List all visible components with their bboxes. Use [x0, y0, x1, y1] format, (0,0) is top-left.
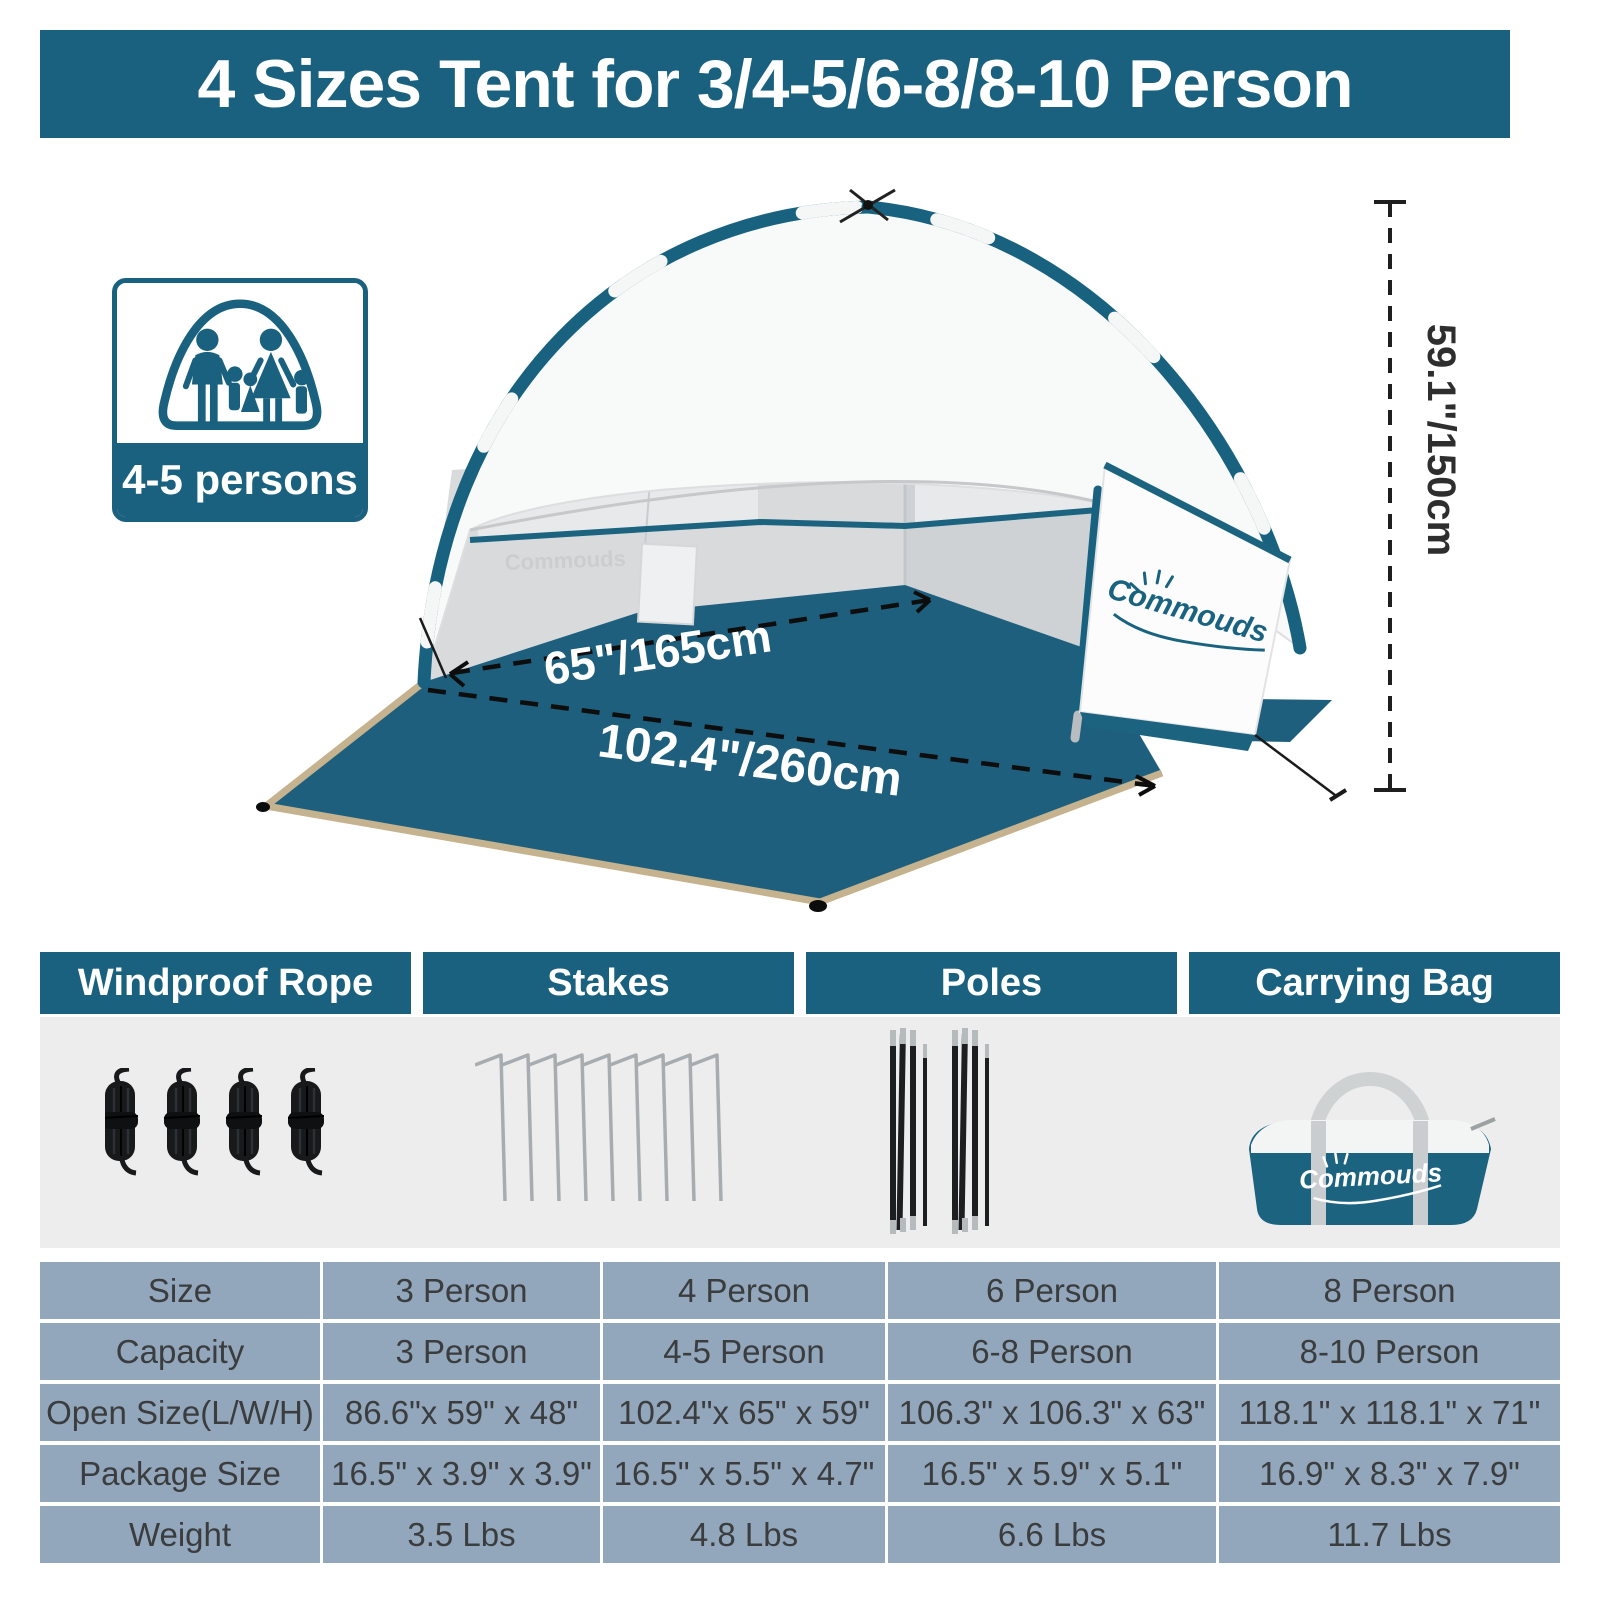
- spec-cell: 106.3" x 106.3" x 63": [888, 1384, 1216, 1441]
- spec-cell: 16.9" x 8.3" x 7.9": [1219, 1445, 1560, 1502]
- spec-cell: 11.7 Lbs: [1219, 1506, 1560, 1563]
- product-infographic: 4 Sizes Tent for 3/4-5/6-8/8-10 Person C…: [0, 0, 1600, 1600]
- header-windproof-rope: Windproof Rope: [40, 952, 411, 1014]
- spec-row-header: Weight: [40, 1506, 320, 1563]
- spec-cell: 6 Person: [888, 1262, 1216, 1319]
- spec-cell: 8 Person: [1219, 1262, 1560, 1319]
- spec-table: Size3 Person4 Person6 Person8 PersonCapa…: [40, 1262, 1560, 1563]
- spec-cell: 102.4"x 65" x 59": [603, 1384, 885, 1441]
- spec-cell: 3 Person: [323, 1262, 600, 1319]
- header-stakes: Stakes: [423, 952, 794, 1014]
- wall-watermark: Commouds: [504, 546, 626, 575]
- capacity-badge: 4-5 persons: [112, 278, 368, 522]
- spec-cell: 86.6"x 59" x 48": [323, 1384, 600, 1441]
- stakes-icon: [420, 1017, 800, 1248]
- rope-coils-icon: [40, 1017, 420, 1248]
- poles-icon: [800, 1017, 1180, 1248]
- capacity-badge-label: 4-5 persons: [117, 443, 363, 517]
- spec-cell: 16.5" x 5.5" x 4.7": [603, 1445, 885, 1502]
- tent-diagram: Commouds: [0, 150, 1600, 940]
- height-dimension: [1374, 202, 1406, 790]
- banner-title: 4 Sizes Tent for 3/4-5/6-8/8-10 Person: [198, 45, 1353, 123]
- spec-cell: 118.1" x 118.1" x 71": [1219, 1384, 1560, 1441]
- dim-height-label: 59.1"/150cm: [1419, 324, 1463, 556]
- spec-row-header: Package Size: [40, 1445, 320, 1502]
- spec-cell: 6.6 Lbs: [888, 1506, 1216, 1563]
- family-in-tent-icon: [117, 283, 363, 443]
- spec-cell: 3 Person: [323, 1323, 600, 1380]
- carrying-bag-icon: Commouds: [1180, 1017, 1560, 1248]
- spec-cell: 16.5" x 3.9" x 3.9": [323, 1445, 600, 1502]
- spec-cell: 4-5 Person: [603, 1323, 885, 1380]
- spec-cell: 4 Person: [603, 1262, 885, 1319]
- spec-row-header: Open Size(L/W/H): [40, 1384, 320, 1441]
- spec-cell: 16.5" x 5.9" x 5.1": [888, 1445, 1216, 1502]
- banner: 4 Sizes Tent for 3/4-5/6-8/8-10 Person: [40, 30, 1510, 138]
- components-headers: Windproof Rope Stakes Poles Carrying Bag: [40, 952, 1560, 1014]
- header-carrying-bag: Carrying Bag: [1189, 952, 1560, 1014]
- components-panel: Commouds: [40, 1017, 1560, 1248]
- spec-cell: 6-8 Person: [888, 1323, 1216, 1380]
- spec-cell: 8-10 Person: [1219, 1323, 1560, 1380]
- spec-cell: 4.8 Lbs: [603, 1506, 885, 1563]
- header-poles: Poles: [806, 952, 1177, 1014]
- spec-cell: 3.5 Lbs: [323, 1506, 600, 1563]
- spec-row-header: Capacity: [40, 1323, 320, 1380]
- spec-row-header: Size: [40, 1262, 320, 1319]
